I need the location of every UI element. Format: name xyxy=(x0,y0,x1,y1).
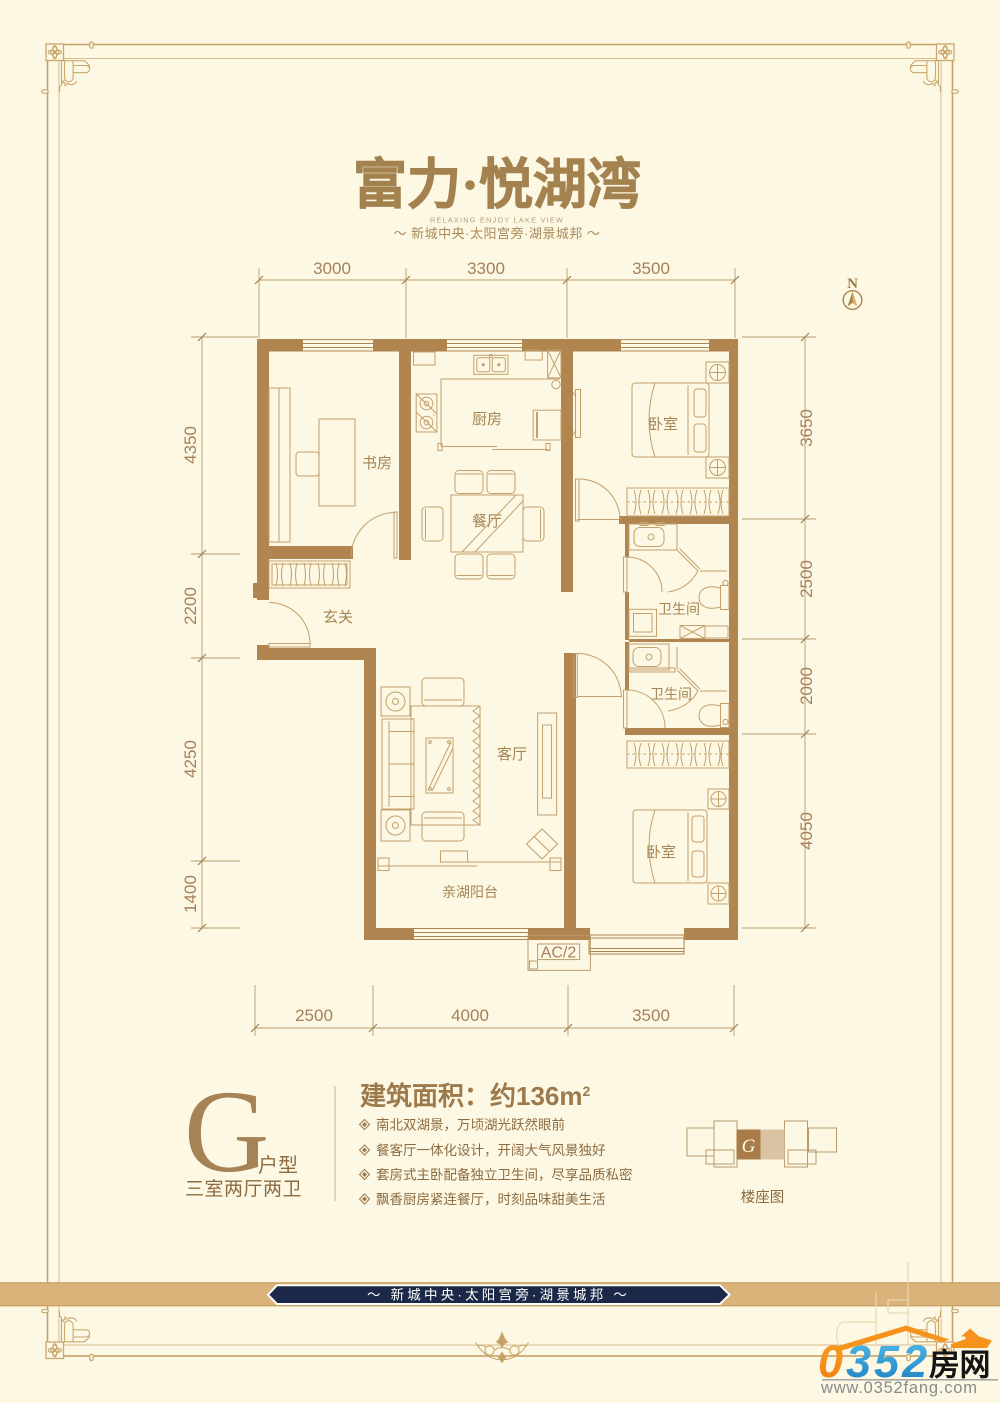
svg-text:3500: 3500 xyxy=(632,1006,670,1025)
svg-text:1400: 1400 xyxy=(181,875,200,913)
svg-text:卧室: 卧室 xyxy=(646,844,676,861)
svg-text:书房: 书房 xyxy=(362,455,392,472)
svg-text:4000: 4000 xyxy=(451,1006,489,1025)
svg-text:4350: 4350 xyxy=(181,426,200,464)
svg-text:卫生间: 卫生间 xyxy=(658,601,700,617)
svg-text:～ 新城中央·太阳宫旁·湖景城邦 ～: ～ 新城中央·太阳宫旁·湖景城邦 ～ xyxy=(367,1287,630,1303)
svg-text:4050: 4050 xyxy=(797,812,816,850)
svg-text:2000: 2000 xyxy=(797,667,816,705)
svg-text:客厅: 客厅 xyxy=(497,746,527,763)
svg-text:建筑面积：约136m2: 建筑面积：约136m2 xyxy=(360,1081,591,1111)
svg-text:卧室: 卧室 xyxy=(648,416,678,433)
svg-text:卫生间: 卫生间 xyxy=(650,686,692,702)
svg-text:飘香厨房紧连餐厅，时刻品味甜美生活: 飘香厨房紧连餐厅，时刻品味甜美生活 xyxy=(376,1192,606,1207)
svg-text:3500: 3500 xyxy=(632,259,670,278)
svg-text:三室两厅两卫: 三室两厅两卫 xyxy=(185,1178,302,1200)
svg-text:4250: 4250 xyxy=(181,740,200,778)
svg-text:玄关: 玄关 xyxy=(323,609,353,626)
svg-text:G: G xyxy=(742,1136,756,1157)
svg-text:套房式主卧配备独立卫生间，尽享品质私密: 套房式主卧配备独立卫生间，尽享品质私密 xyxy=(376,1167,633,1183)
svg-text:餐客厅一体化设计，开阔大气风景独好: 餐客厅一体化设计，开阔大气风景独好 xyxy=(376,1142,606,1158)
svg-text:厨房: 厨房 xyxy=(472,411,502,428)
svg-text:亲湖阳台: 亲湖阳台 xyxy=(442,884,498,900)
svg-text:N: N xyxy=(847,276,858,292)
svg-text:G: G xyxy=(184,1066,269,1197)
svg-text:3300: 3300 xyxy=(467,259,505,278)
svg-text:房网: 房网 xyxy=(929,1348,990,1383)
svg-text:2200: 2200 xyxy=(181,587,200,625)
svg-text:AC/2: AC/2 xyxy=(541,945,577,962)
svg-text:3000: 3000 xyxy=(313,259,351,278)
svg-text:2500: 2500 xyxy=(295,1006,333,1025)
svg-text:2500: 2500 xyxy=(797,560,816,598)
svg-text:www.0352fang.com: www.0352fang.com xyxy=(820,1379,978,1397)
svg-text:～ 新城中央·太阳宫旁·湖景城邦 ～: ～ 新城中央·太阳宫旁·湖景城邦 ～ xyxy=(394,226,601,241)
svg-text:南北双湖景，万顷湖光跃然眼前: 南北双湖景，万顷湖光跃然眼前 xyxy=(376,1117,565,1133)
svg-text:楼座图: 楼座图 xyxy=(741,1189,785,1206)
svg-text:RELAXING ENJOY LAKE VIEW: RELAXING ENJOY LAKE VIEW xyxy=(430,216,564,225)
svg-text:户型: 户型 xyxy=(258,1154,298,1177)
svg-text:富力·悦湖湾: 富力·悦湖湾 xyxy=(353,155,641,215)
svg-text:3650: 3650 xyxy=(797,409,816,447)
